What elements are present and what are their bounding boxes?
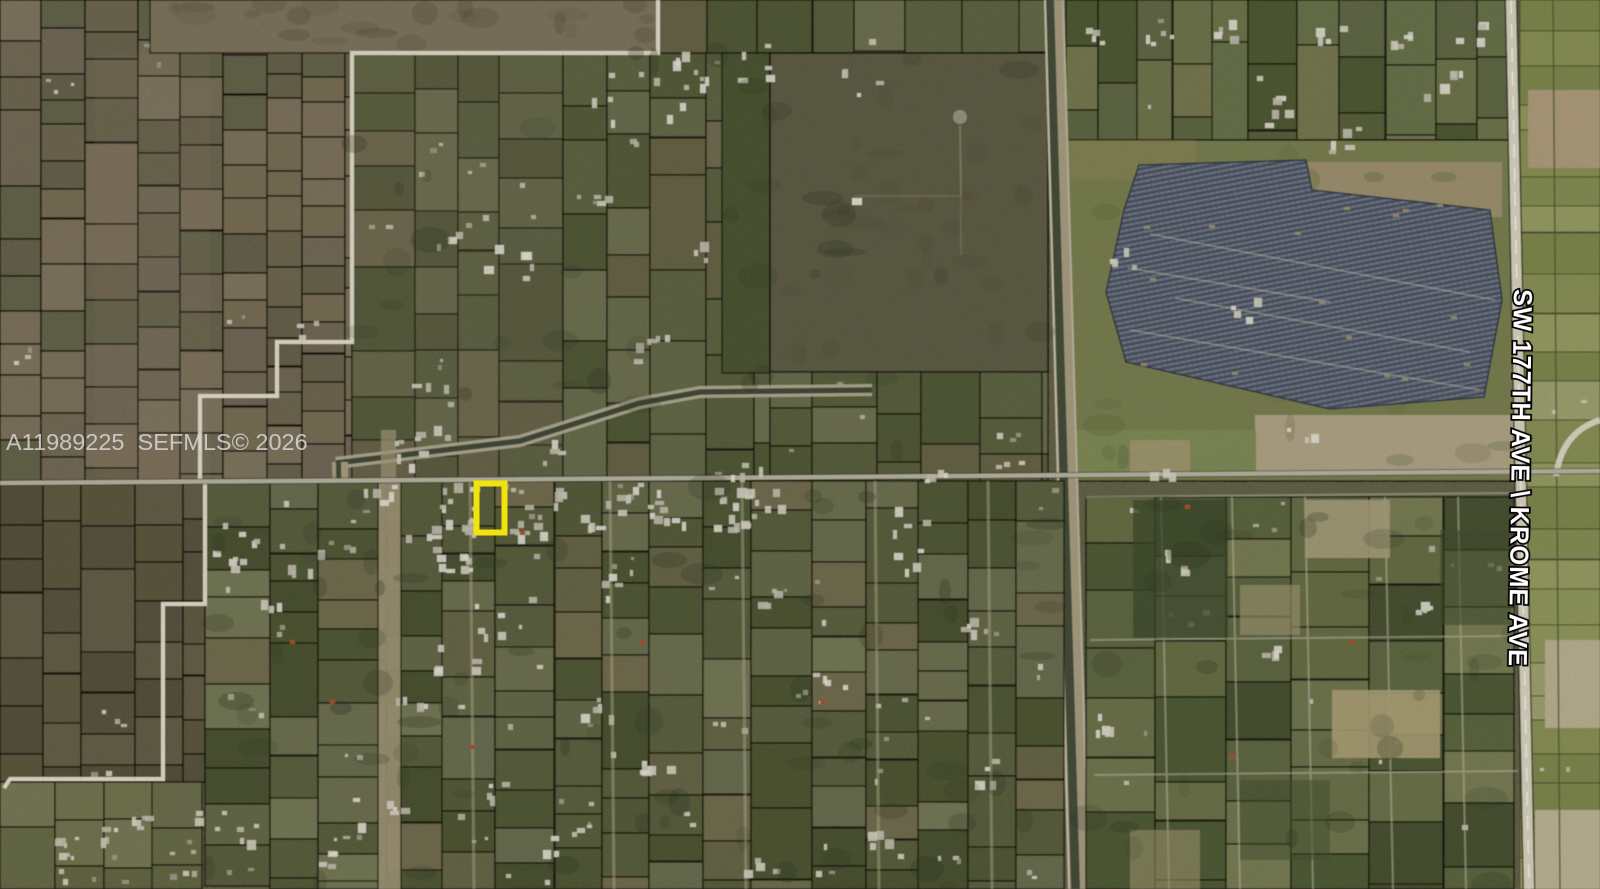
svg-text:SW 177TH AVE \ KROME AVE: SW 177TH AVE \ KROME AVE: [1503, 289, 1538, 667]
svg-text:A11989225 SEFMLS© 2026: A11989225 SEFMLS© 2026: [6, 429, 308, 455]
